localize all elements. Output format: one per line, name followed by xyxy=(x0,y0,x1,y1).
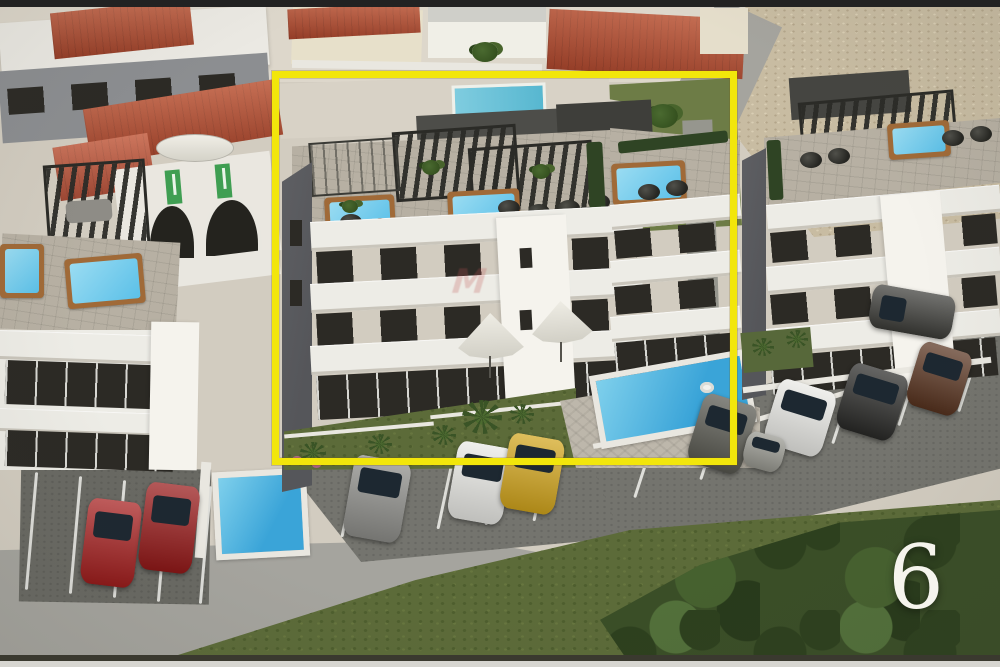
watermark: M xyxy=(449,262,594,310)
frame-strip-bottom xyxy=(0,661,1000,667)
frame-bar-top xyxy=(0,0,1000,7)
listing-photo: M 6 xyxy=(0,0,1000,667)
photo-number: 6 xyxy=(866,534,966,622)
